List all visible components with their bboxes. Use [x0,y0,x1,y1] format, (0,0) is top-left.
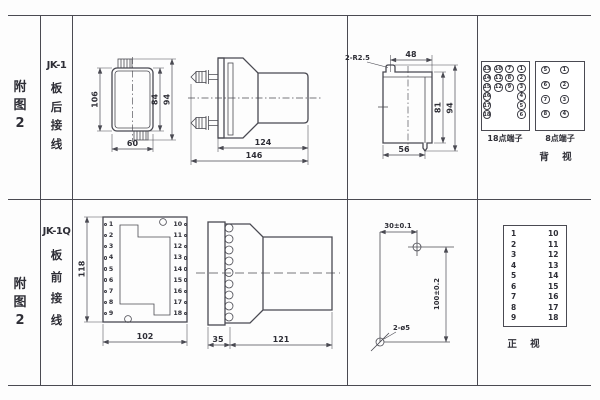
terminal-column-5-8: 5678 [541,66,549,125]
terminal-row: 6 [104,277,120,284]
terminal-row: 18 [168,310,187,317]
dim-label-48: 48 [405,50,417,59]
dim-label-35: 35 [212,335,224,344]
terminal-circle: 1 [517,65,525,73]
terminal-row: 1 [104,221,120,228]
terminal-number: 17 [173,299,182,306]
front-plate-terminals-left: 123456789 [104,221,120,317]
terminal-number: 9 [109,310,113,317]
terminal-number: 8 [109,299,113,306]
figure-char: 2 [1,312,39,330]
terminal-dot [184,256,187,259]
dim-label-84: 84 [151,94,160,106]
terminal-number: 11 [173,232,182,239]
hole-layout [371,230,454,351]
terminal-number: 16 [173,288,182,295]
terminal-dot [104,223,107,226]
terminal-column-1-6: 123456 [517,65,525,119]
terminal-box-8: 5678 1234 [535,61,585,131]
terminal-number: 13 [173,254,182,261]
table-border-middle [8,199,591,200]
terminal-number: 6 [511,283,516,291]
figure-char: 图 [1,97,39,115]
dim-label-100: 100±0.2 [433,278,441,310]
terminal-dot [184,245,187,248]
terminal-box-8-label: 8点端子 [535,133,585,144]
terminal-dot [104,290,107,293]
wiring-char: 接 [41,288,72,310]
terminal-dot [184,301,187,304]
terminal-column-7-9: 789 [505,65,513,92]
dim-label-81: 81 [434,102,443,114]
terminal-circle: 17 [483,101,491,109]
dimensions: 30±0.1 100±0.2 2-ø5 [380,222,446,342]
terminal-number: 8 [511,304,516,312]
terminal-column-10-12: 101112 [494,65,502,92]
terminal-row: 11 [168,232,187,239]
figure-char: 附 [1,276,39,294]
terminal-circle: 6 [517,110,525,118]
jk1-top-view-drawing: 106 60 84 94 [88,42,196,170]
terminal-circle: 2 [560,81,568,89]
figure-char: 附 [1,79,39,97]
terminal-dot [184,278,187,281]
relay-case-outline [112,57,153,142]
dim-label-106: 106 [91,91,100,108]
terminal-number: 10 [173,221,182,228]
terminal-number: 4 [109,254,113,261]
terminal-circle: 11 [494,74,502,82]
terminal-number: 9 [511,314,516,322]
wiring-char: 线 [41,135,72,154]
rear-view-label: 背 视 [518,149,598,163]
terminal-row: 7 [104,288,120,295]
dim-label-94: 94 [163,94,172,106]
terminal-circle: 13 [483,65,491,73]
dimensions: 35 121 [208,312,332,349]
front-plate-terminals-right: 101112131415161718 [168,221,187,317]
figure-label-row2: 附 图 2 [1,276,39,330]
dim-label-94: 94 [446,102,455,114]
terminal-circle: 5 [541,66,549,74]
table-border-top [8,15,591,16]
dim-label-118: 118 [78,260,87,277]
model-name: JK-1 [41,60,72,71]
front-view-terminals-right: 101112131415161718 [548,230,558,322]
jk1q-drilling-plan-drawing: 30±0.1 100±0.2 2-ø5 [358,208,483,356]
terminal-row: 16 [168,288,187,295]
terminal-number: 5 [109,266,113,273]
mounting-bolt-top [191,70,218,84]
terminal-dot [184,223,187,226]
wiring-char: 板 [41,245,72,267]
terminal-circle: 10 [494,65,502,73]
mounting-hole-top [160,219,167,226]
terminal-number: 1 [511,230,516,238]
terminal-dot [184,267,187,270]
terminal-circle: 6 [541,81,549,89]
terminal-row: 15 [168,277,187,284]
figure-char: 图 [1,294,39,312]
terminal-circle: 3 [560,95,568,103]
terminal-circle: 4 [560,110,568,118]
terminal-dot [104,278,107,281]
relay-body-outline [196,222,340,325]
terminal-dot [104,256,107,259]
terminal-number: 14 [173,266,182,273]
terminal-row: 14 [168,266,187,273]
terminal-column-1-4: 1234 [560,66,568,125]
terminal-number: 18 [548,314,558,322]
terminal-box-18: 131415161718 101112 789 123456 [481,61,530,131]
terminal-number: 7 [109,288,113,295]
page: 附 图 2 JK-1 板 后 接 线 106 [0,0,600,400]
terminal-number: 6 [109,277,113,284]
model-label-row2: JK-1Q 板 前 接 线 [41,226,72,331]
terminal-circle: 9 [505,83,513,91]
terminal-row: 13 [168,254,187,261]
front-view-label: 正 视 [486,336,566,350]
terminal-dot [104,301,107,304]
terminal-row: 17 [168,299,187,306]
dim-label-124: 124 [255,138,272,147]
dim-label-2-R2.5: 2-R2.5 [345,54,370,62]
terminal-circle: 18 [483,110,491,118]
dim-label-2-o5: 2-ø5 [393,324,410,332]
wiring-char: 后 [41,98,72,117]
terminal-number: 11 [548,241,558,249]
front-view-terminals-left: 123456789 [511,230,516,322]
terminal-number: 1 [109,221,113,228]
terminal-row: 9 [104,310,120,317]
model-name: JK-1Q [41,226,72,237]
terminal-circle: 16 [483,92,491,100]
jk1-side-view-drawing: 124 146 [188,40,340,172]
dim-label-30: 30±0.1 [384,222,411,230]
front-view-terminal-box: 123456789 101112131415161718 [503,225,567,327]
terminal-number: 2 [109,232,113,239]
terminal-dot [104,245,107,248]
dim-label-60: 60 [127,139,139,148]
terminal-number: 16 [548,293,558,301]
terminal-number: 12 [548,251,558,259]
terminal-row: 2 [104,232,120,239]
model-label-row1: JK-1 板 后 接 线 [41,60,72,153]
terminal-circle: 7 [541,95,549,103]
cutout-outline [378,65,432,151]
terminal-number: 5 [511,272,516,280]
terminal-number: 15 [548,283,558,291]
wiring-char: 线 [41,310,72,332]
terminal-circle: 15 [483,83,491,91]
terminal-number: 4 [511,262,516,270]
mounting-bolt-bottom [191,116,218,130]
terminal-number: 7 [511,293,516,301]
terminal-row: 3 [104,243,120,250]
terminal-row: 12 [168,243,187,250]
terminal-circle: 12 [494,83,502,91]
relay-body-outline [188,58,321,138]
wiring-char: 板 [41,79,72,98]
terminal-dot [184,312,187,315]
terminal-number: 14 [548,272,558,280]
terminal-number: 13 [548,262,558,270]
table-border-bottom [8,385,591,386]
terminal-circle: 3 [517,83,525,91]
terminal-box-18-label: 18点端子 [475,133,535,144]
terminal-number: 2 [511,241,516,249]
wiring-char: 接 [41,116,72,135]
jk1q-side-view-drawing: 35 121 [193,203,345,353]
dim-label-56: 56 [398,145,410,154]
terminal-circle: 1 [560,66,568,74]
terminal-number: 3 [109,243,113,250]
terminal-row: 10 [168,221,187,228]
terminal-row: 8 [104,299,120,306]
terminal-circle: 5 [517,101,525,109]
wiring-char: 前 [41,267,72,289]
terminal-dot [184,290,187,293]
terminal-column-13-18: 131415161718 [483,65,491,119]
terminal-row: 5 [104,266,120,273]
terminal-dot [104,267,107,270]
terminal-circle: 8 [541,110,549,118]
terminal-circle: 8 [505,74,513,82]
terminal-number: 10 [548,230,558,238]
terminal-circle: 4 [517,92,525,100]
terminal-row: 4 [104,254,120,261]
terminal-circle: 14 [483,74,491,82]
terminal-number: 17 [548,304,558,312]
terminal-number: 3 [511,251,516,259]
terminal-dot [104,312,107,315]
dim-label-146: 146 [246,151,263,160]
terminal-circle: 2 [517,74,525,82]
dimensions: 106 60 84 94 [91,59,177,152]
dim-label-102: 102 [137,332,154,341]
terminal-dot [184,234,187,237]
terminal-circle: 7 [505,65,513,73]
dim-label-121: 121 [273,335,290,344]
terminal-number: 15 [173,277,182,284]
figure-label-row1: 附 图 2 [1,79,39,133]
terminal-dot [104,234,107,237]
figure-char: 2 [1,115,39,133]
terminal-number: 18 [173,310,182,317]
table-divider-2 [72,15,73,385]
jk1-panel-cutout-drawing: 2-R2.5 48 81 94 56 [345,40,475,175]
terminal-number: 12 [173,243,182,250]
